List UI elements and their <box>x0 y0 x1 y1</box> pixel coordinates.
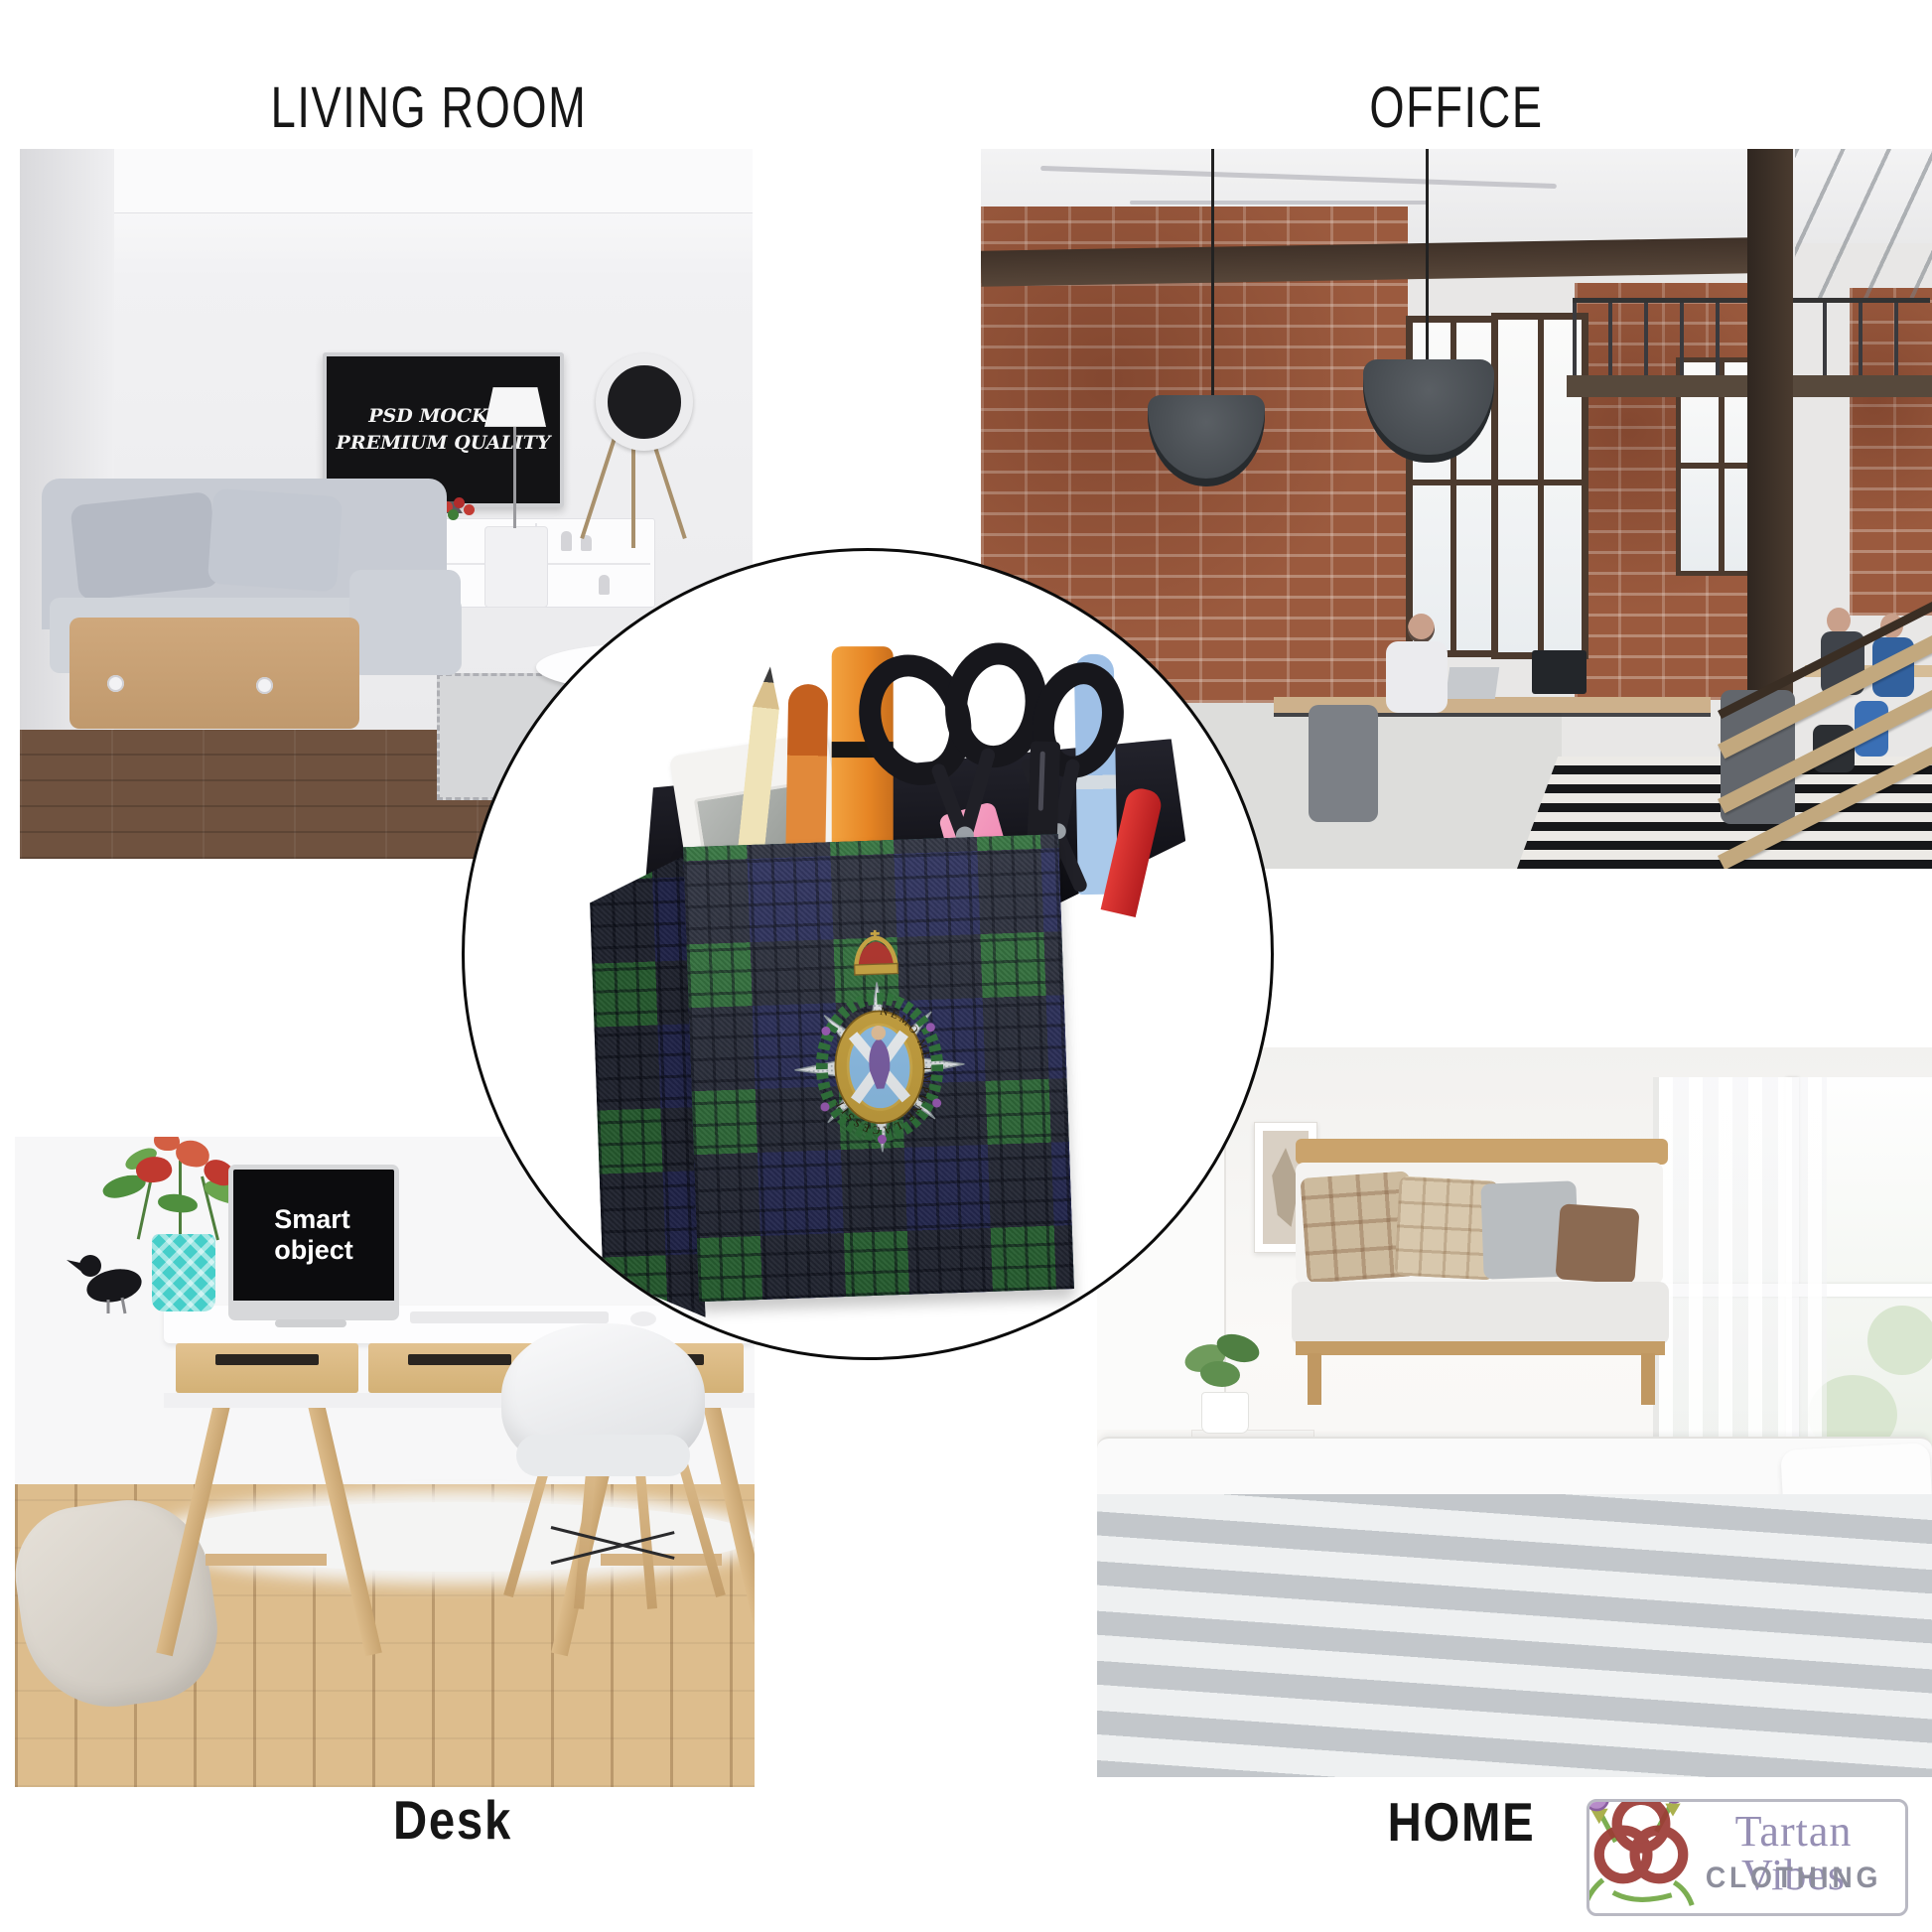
teal-vase <box>152 1234 215 1311</box>
desktop-monitor: Smart object <box>228 1165 399 1320</box>
chair-seat <box>516 1435 690 1476</box>
floor-lamp-shade <box>484 387 546 427</box>
office-label: OFFICE <box>1085 79 1827 137</box>
holder-front-panel: NEMO ME IMPUNE LACESSIT <box>683 834 1074 1302</box>
desktop-monitor <box>1532 650 1587 694</box>
thistle-flower <box>1665 1799 1683 1802</box>
brand-logo: Tartan Vibes CLOTHING <box>1587 1799 1908 1916</box>
mockup-collage: LIVING ROOM OFFICE Desk HOME PSD MOCKUP … <box>0 0 1932 1932</box>
living-room-label: LIVING ROOM <box>142 79 715 137</box>
bench-leg <box>1641 1353 1655 1405</box>
monitor-base <box>275 1319 346 1327</box>
product-zoom-circle: NEMO ME IMPUNE LACESSIT <box>462 548 1274 1360</box>
thistle-flower <box>1587 1799 1608 1810</box>
ceiling-pipe <box>1130 201 1428 205</box>
tripod-spotlight <box>596 353 693 451</box>
plant-pot <box>1201 1392 1249 1434</box>
bird-figurine <box>67 1240 152 1319</box>
person-working <box>1386 641 1448 713</box>
ceiling <box>20 149 753 213</box>
flower <box>454 497 465 508</box>
bench-front-rail <box>1296 1341 1665 1355</box>
brand-subtitle: CLOTHING <box>1693 1862 1893 1895</box>
bench-seat-cushion <box>1292 1282 1669 1345</box>
bench-leg <box>1308 1353 1321 1405</box>
person-head <box>1408 614 1435 643</box>
tripod-leg <box>631 433 635 548</box>
floor-lamp-pole <box>513 425 516 528</box>
lamp-cord <box>1211 149 1214 397</box>
red-flower <box>154 1137 180 1151</box>
office-chair <box>1309 705 1378 822</box>
monitor-screen-text: Smart object <box>274 1204 353 1266</box>
striped-duvet <box>1097 1494 1932 1777</box>
flower <box>464 504 475 515</box>
tartan-pencil-holder: NEMO ME IMPUNE LACESSIT <box>462 548 1274 1360</box>
panel-screw <box>107 675 124 692</box>
plant-leaf <box>1200 1361 1240 1387</box>
panel-screw <box>256 677 273 694</box>
person-head <box>1827 608 1851 633</box>
skylight-windows <box>1795 149 1932 300</box>
leaf <box>157 1193 198 1214</box>
desk-leg-crossbar <box>206 1554 327 1566</box>
outdoor-greenery <box>1867 1306 1932 1375</box>
laptop <box>1446 667 1499 699</box>
bench-back-rail <box>1296 1139 1668 1165</box>
lamp-cord <box>1426 149 1429 362</box>
sofa-armrest <box>349 570 461 675</box>
desk-label: Desk <box>137 1793 768 1848</box>
drawer <box>176 1343 358 1393</box>
sofa-wood-panel <box>69 618 359 729</box>
leaf <box>448 509 459 520</box>
clan-crest-badge: NEMO ME IMPUNE LACESSIT <box>775 926 982 1172</box>
brown-pillow <box>1555 1203 1639 1284</box>
crown <box>853 929 897 975</box>
vase <box>561 531 572 551</box>
sofa-pillow <box>207 488 343 593</box>
sofa-pillow <box>69 491 219 601</box>
